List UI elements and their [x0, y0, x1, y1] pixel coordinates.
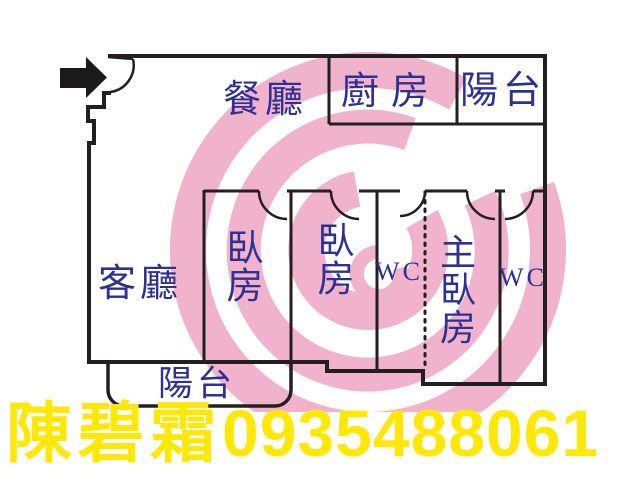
room-label-kitchen: 廚房	[341, 73, 441, 111]
room-label-balcony-top: 陽台	[460, 72, 546, 110]
contact-name: 陳碧霜	[6, 396, 222, 470]
room-label-bedroom-1: 臥房	[224, 231, 265, 308]
room-label-wc-1: WC	[375, 259, 423, 285]
room-label-living: 客廳	[98, 265, 182, 303]
entrance-arrow-icon	[60, 57, 107, 98]
floor-plan-page: 餐廳 廚房 陽台 客廳 臥房 臥房 WC 主臥房 WC 陽台 陳碧霜093548…	[0, 0, 635, 480]
room-label-wc-2: WC	[499, 265, 547, 291]
contact-phone: 0935488061	[222, 396, 599, 470]
room-label-master-bedroom: 主臥房	[438, 235, 478, 347]
room-label-dining: 餐廳	[223, 81, 307, 119]
room-label-bedroom-2: 臥房	[315, 224, 356, 301]
contact-banner: 陳碧霜0935488061	[6, 399, 599, 468]
